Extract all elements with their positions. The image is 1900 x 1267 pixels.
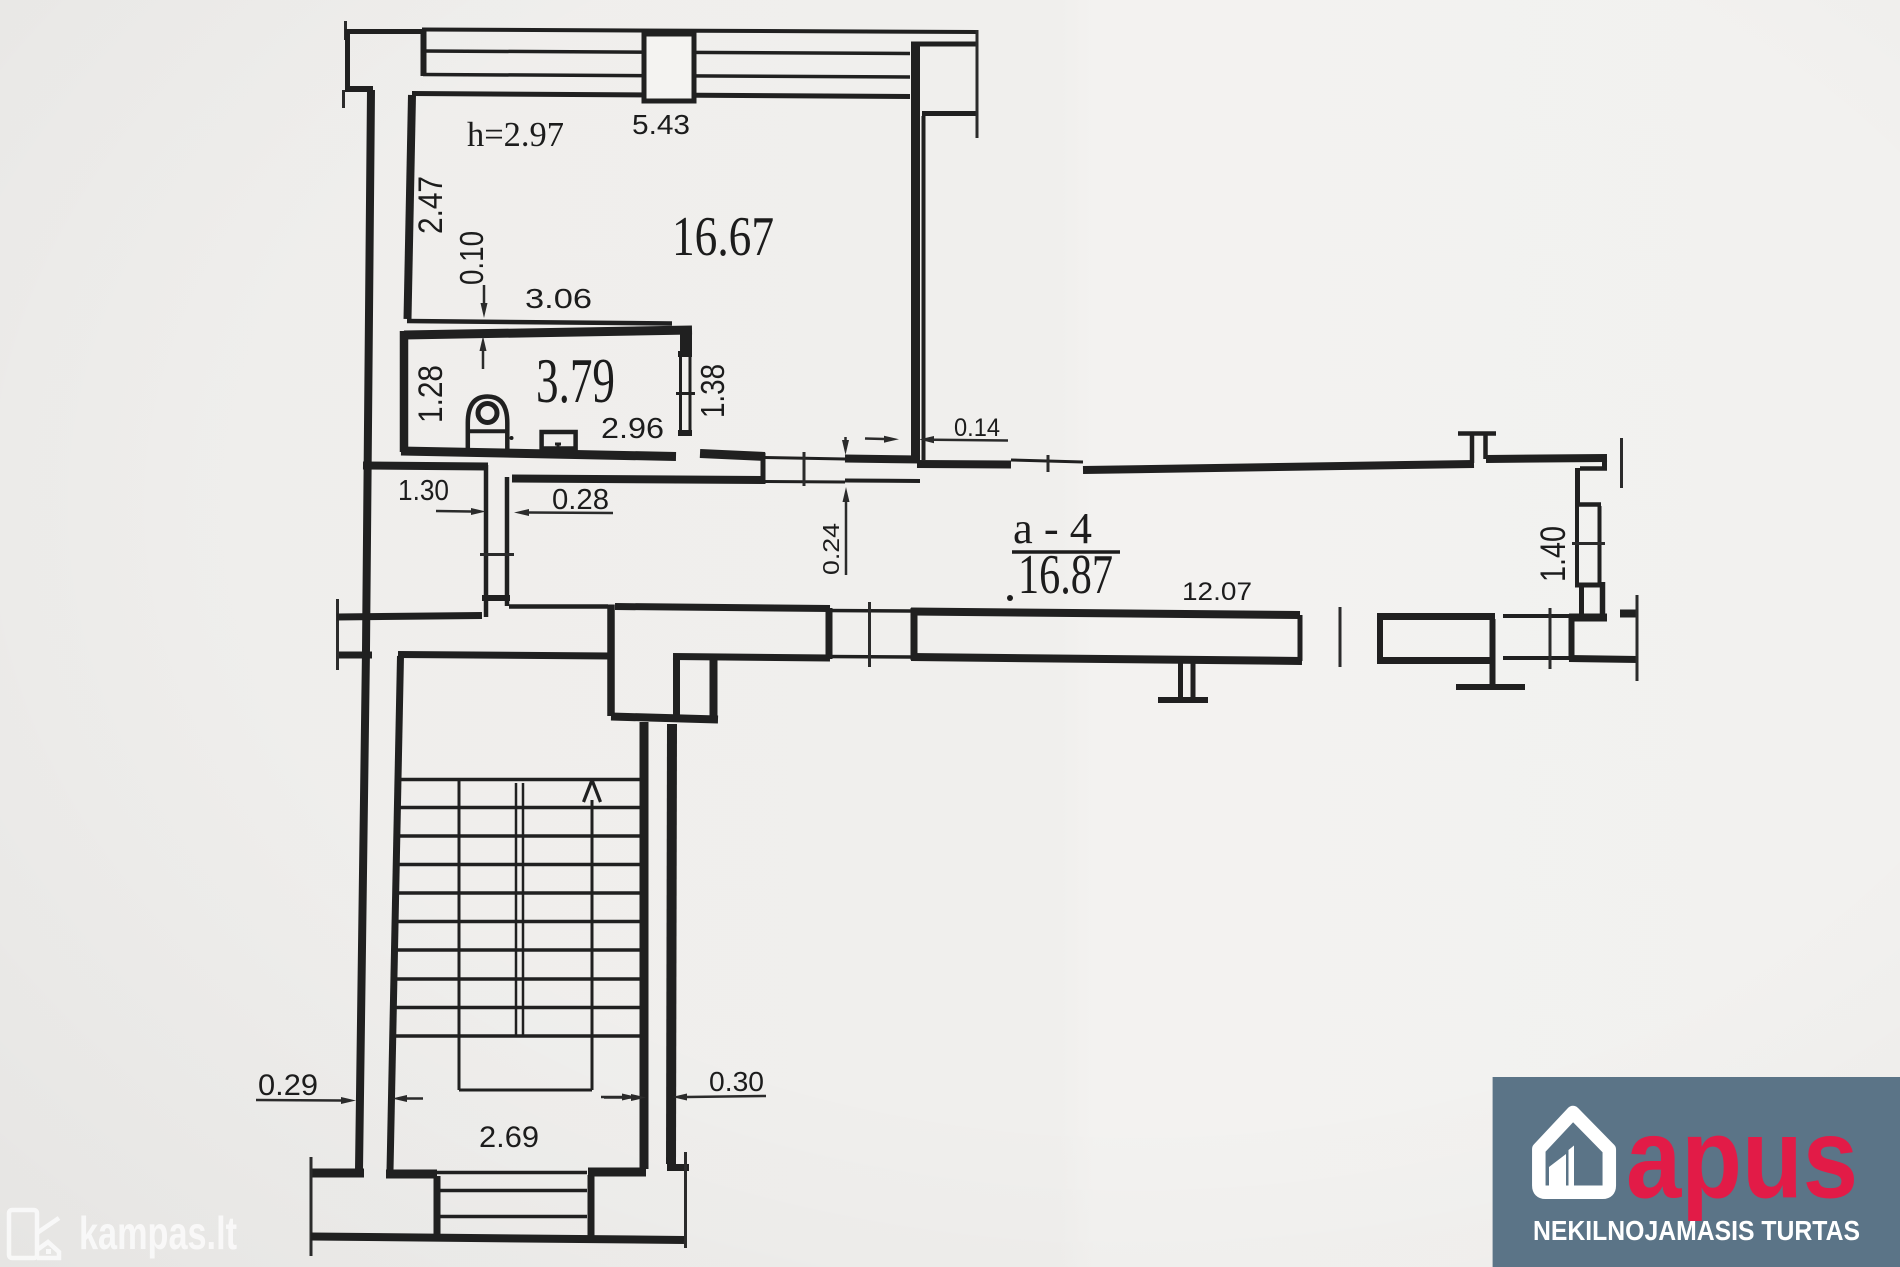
svg-text:5.43: 5.43 <box>632 109 690 140</box>
svg-text:kampas.lt: kampas.lt <box>79 1207 237 1259</box>
svg-text:0.14: 0.14 <box>954 414 1000 442</box>
svg-text:2.96: 2.96 <box>601 413 664 445</box>
svg-text:2.69: 2.69 <box>479 1121 539 1154</box>
svg-text:1.40: 1.40 <box>1534 526 1573 582</box>
svg-text:2.47: 2.47 <box>412 176 450 234</box>
svg-text:3.06: 3.06 <box>525 283 592 314</box>
svg-text:16.67: 16.67 <box>672 206 774 268</box>
svg-text:0.10: 0.10 <box>453 231 490 285</box>
svg-text:1.38: 1.38 <box>694 364 731 418</box>
svg-text:0.30: 0.30 <box>709 1066 764 1097</box>
svg-text:apus: apus <box>1626 1096 1858 1223</box>
svg-text:12.07: 12.07 <box>1182 578 1252 606</box>
svg-text:0.24: 0.24 <box>818 523 844 575</box>
svg-text:3.79: 3.79 <box>536 346 615 416</box>
svg-text:1.28: 1.28 <box>412 365 450 423</box>
svg-text:0.29: 0.29 <box>258 1069 318 1102</box>
svg-text:0.28: 0.28 <box>552 484 609 516</box>
svg-text:1.30: 1.30 <box>398 475 449 507</box>
svg-text:h=2.97: h=2.97 <box>467 115 564 154</box>
svg-text:NEKILNOJAMASIS TURTAS: NEKILNOJAMASIS TURTAS <box>1533 1215 1860 1246</box>
